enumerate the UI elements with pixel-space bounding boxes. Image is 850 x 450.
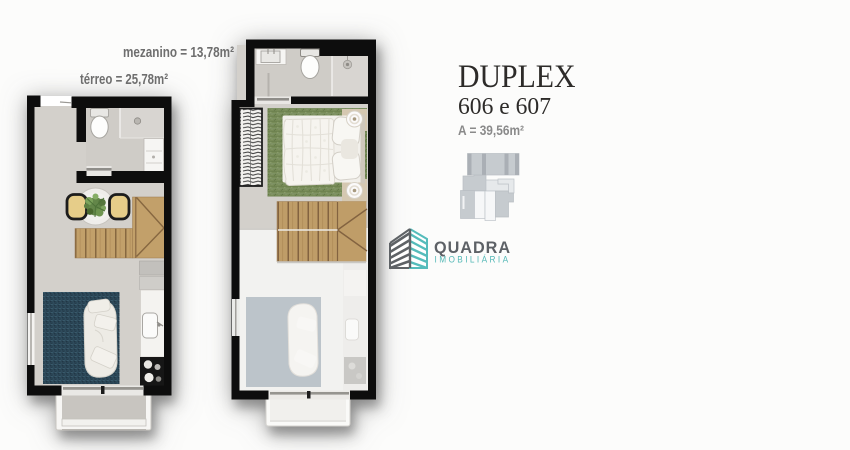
svg-text:térreo = 25,78m²: térreo = 25,78m² [80, 71, 168, 88]
svg-text:606 e 607: 606 e 607 [458, 94, 551, 120]
svg-text:mezanino = 13,78m²: mezanino = 13,78m² [123, 44, 234, 61]
svg-text:IMOBILIÁRIA: IMOBILIÁRIA [435, 255, 511, 265]
svg-text:A = 39,56m²: A = 39,56m² [458, 122, 524, 138]
svg-text:DUPLEX: DUPLEX [458, 59, 576, 95]
